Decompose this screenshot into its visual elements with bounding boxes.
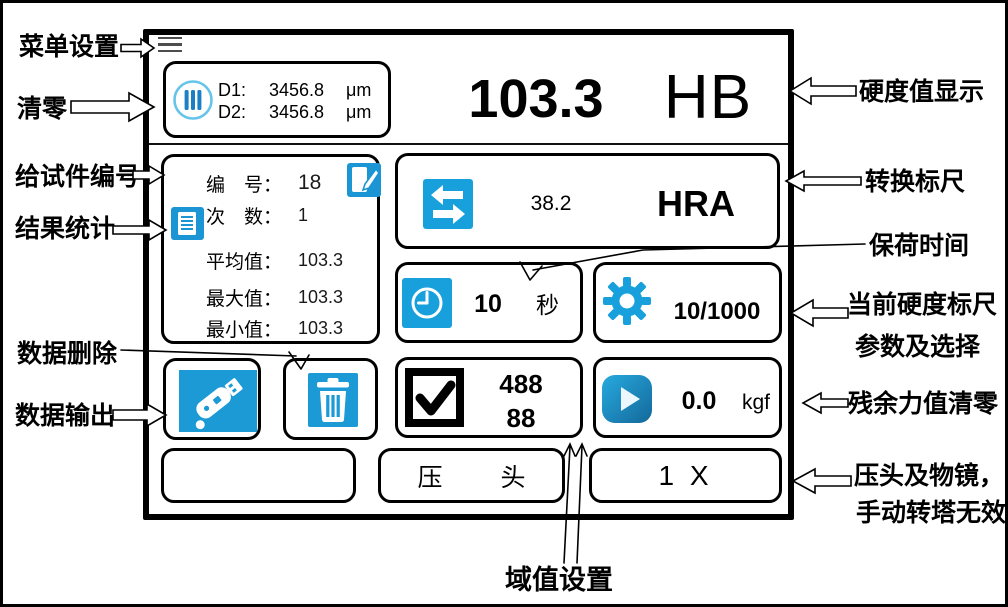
force-box[interactable]: 0.0 kgf (593, 357, 782, 438)
d1-label: D1: (218, 79, 254, 101)
hold-time-unit: 秒 (536, 291, 566, 319)
annotation-data-delete: 数据删除 (17, 339, 117, 369)
annotation-clear-zero: 清零 (17, 94, 67, 124)
dial-bars-icon (172, 79, 214, 121)
play-icon (602, 375, 652, 423)
hold-time-value: 10 (460, 290, 516, 318)
usb-output-button[interactable] (163, 358, 261, 440)
conversion-value: 38.2 (503, 190, 599, 218)
arrow-residual-force (803, 393, 848, 413)
threshold-value-1: 488 (476, 369, 566, 399)
threshold-box[interactable]: 488 88 (395, 357, 583, 438)
annotation-conversion-scale: 转换标尺 (865, 167, 965, 197)
stat-row-min: 最小值： 103.3 (206, 315, 343, 341)
document-icon[interactable] (171, 207, 204, 240)
annotation-threshold-setting: 域值设置 (505, 565, 613, 595)
conversion-box[interactable]: 38.2 HRA (395, 153, 780, 249)
stat-row-count: 次 数： 1 (206, 202, 308, 228)
force-unit: kgf (742, 391, 782, 415)
d2-label: D2: (218, 101, 254, 123)
annotation-menu-settings: 菜单设置 (19, 32, 119, 62)
top-separator (149, 143, 788, 145)
gear-icon (601, 275, 653, 327)
conversion-scale: HRA (636, 181, 756, 227)
arrow-current-scale (791, 300, 848, 326)
menu-button[interactable] (158, 37, 182, 52)
annotation-residual-force: 残余力值清零 (848, 389, 998, 419)
stat-row-average: 平均值： 103.3 (206, 247, 343, 273)
checkbox-icon (405, 368, 464, 427)
usb-icon (179, 370, 257, 432)
d2-unit: μm (346, 101, 371, 123)
indenter-box[interactable]: 压 头 (378, 448, 565, 503)
stats-box[interactable]: 编 号： 18 次 数： 1 平均值： 103.3 最大值： 103.3 最小值… (161, 154, 380, 344)
stat-row-number: 编 号： 18 (206, 170, 321, 196)
trash-icon (308, 373, 358, 427)
d1-value: 3456.8 (254, 79, 324, 101)
d1-unit: μm (346, 79, 371, 101)
annotation-data-output: 数据输出 (15, 401, 115, 431)
annotation-result-stats: 结果统计 (15, 214, 115, 244)
annotation-indenter-1: 压头及物镜， (854, 461, 1004, 491)
d1-row: D1: 3456.8 μm (218, 79, 384, 101)
annotation-hold-time: 保荷时间 (869, 231, 969, 261)
hardness-tester-diagram: D1: 3456.8 μm D2: 3456.8 μm 103.3 HB 编 号… (0, 0, 1008, 607)
hamburger-icon (158, 43, 182, 45)
annotation-specimen-number: 给试件编号 (15, 162, 140, 192)
annotation-current-scale-1: 当前硬度标尺 (847, 290, 997, 320)
arrow-hardness-display (790, 78, 856, 104)
d2-value: 3456.8 (254, 101, 324, 123)
trash-delete-button[interactable] (283, 358, 378, 440)
edit-note-icon[interactable] (347, 163, 381, 197)
measurement-box[interactable]: D1: 3456.8 μm D2: 3456.8 μm (163, 61, 391, 138)
indenter-label: 压 (417, 458, 442, 494)
bottom-empty-box[interactable] (161, 448, 356, 503)
objective-label: 1 X (658, 460, 712, 492)
arrow-indenter (793, 469, 851, 493)
annotation-indenter-2: 手动转塔无效 (856, 498, 1006, 528)
indenter-label: 头 (501, 458, 526, 494)
d2-row: D2: 3456.8 μm (218, 101, 384, 123)
swap-arrows-icon (423, 179, 473, 229)
annotation-hardness-display: 硬度值显示 (859, 77, 984, 107)
scale-params-value: 10/1000 (658, 298, 776, 326)
hardness-value: 103.3 (451, 63, 621, 135)
threshold-value-2: 88 (476, 403, 566, 433)
stat-row-max: 最大值： 103.3 (206, 284, 343, 310)
force-value: 0.0 (668, 388, 730, 414)
annotation-current-scale-2: 参数及选择 (855, 332, 980, 362)
hamburger-icon (158, 37, 182, 39)
hardness-scale: HB (655, 58, 761, 136)
objective-box[interactable]: 1 X (589, 448, 782, 503)
clock-icon (402, 278, 452, 328)
hamburger-icon (158, 50, 182, 52)
arrow-conversion-scale (786, 171, 861, 191)
arrow-clear-zero (71, 93, 154, 121)
scale-params-box[interactable]: 10/1000 (593, 262, 782, 343)
hold-time-box[interactable]: 10 秒 (395, 262, 583, 343)
